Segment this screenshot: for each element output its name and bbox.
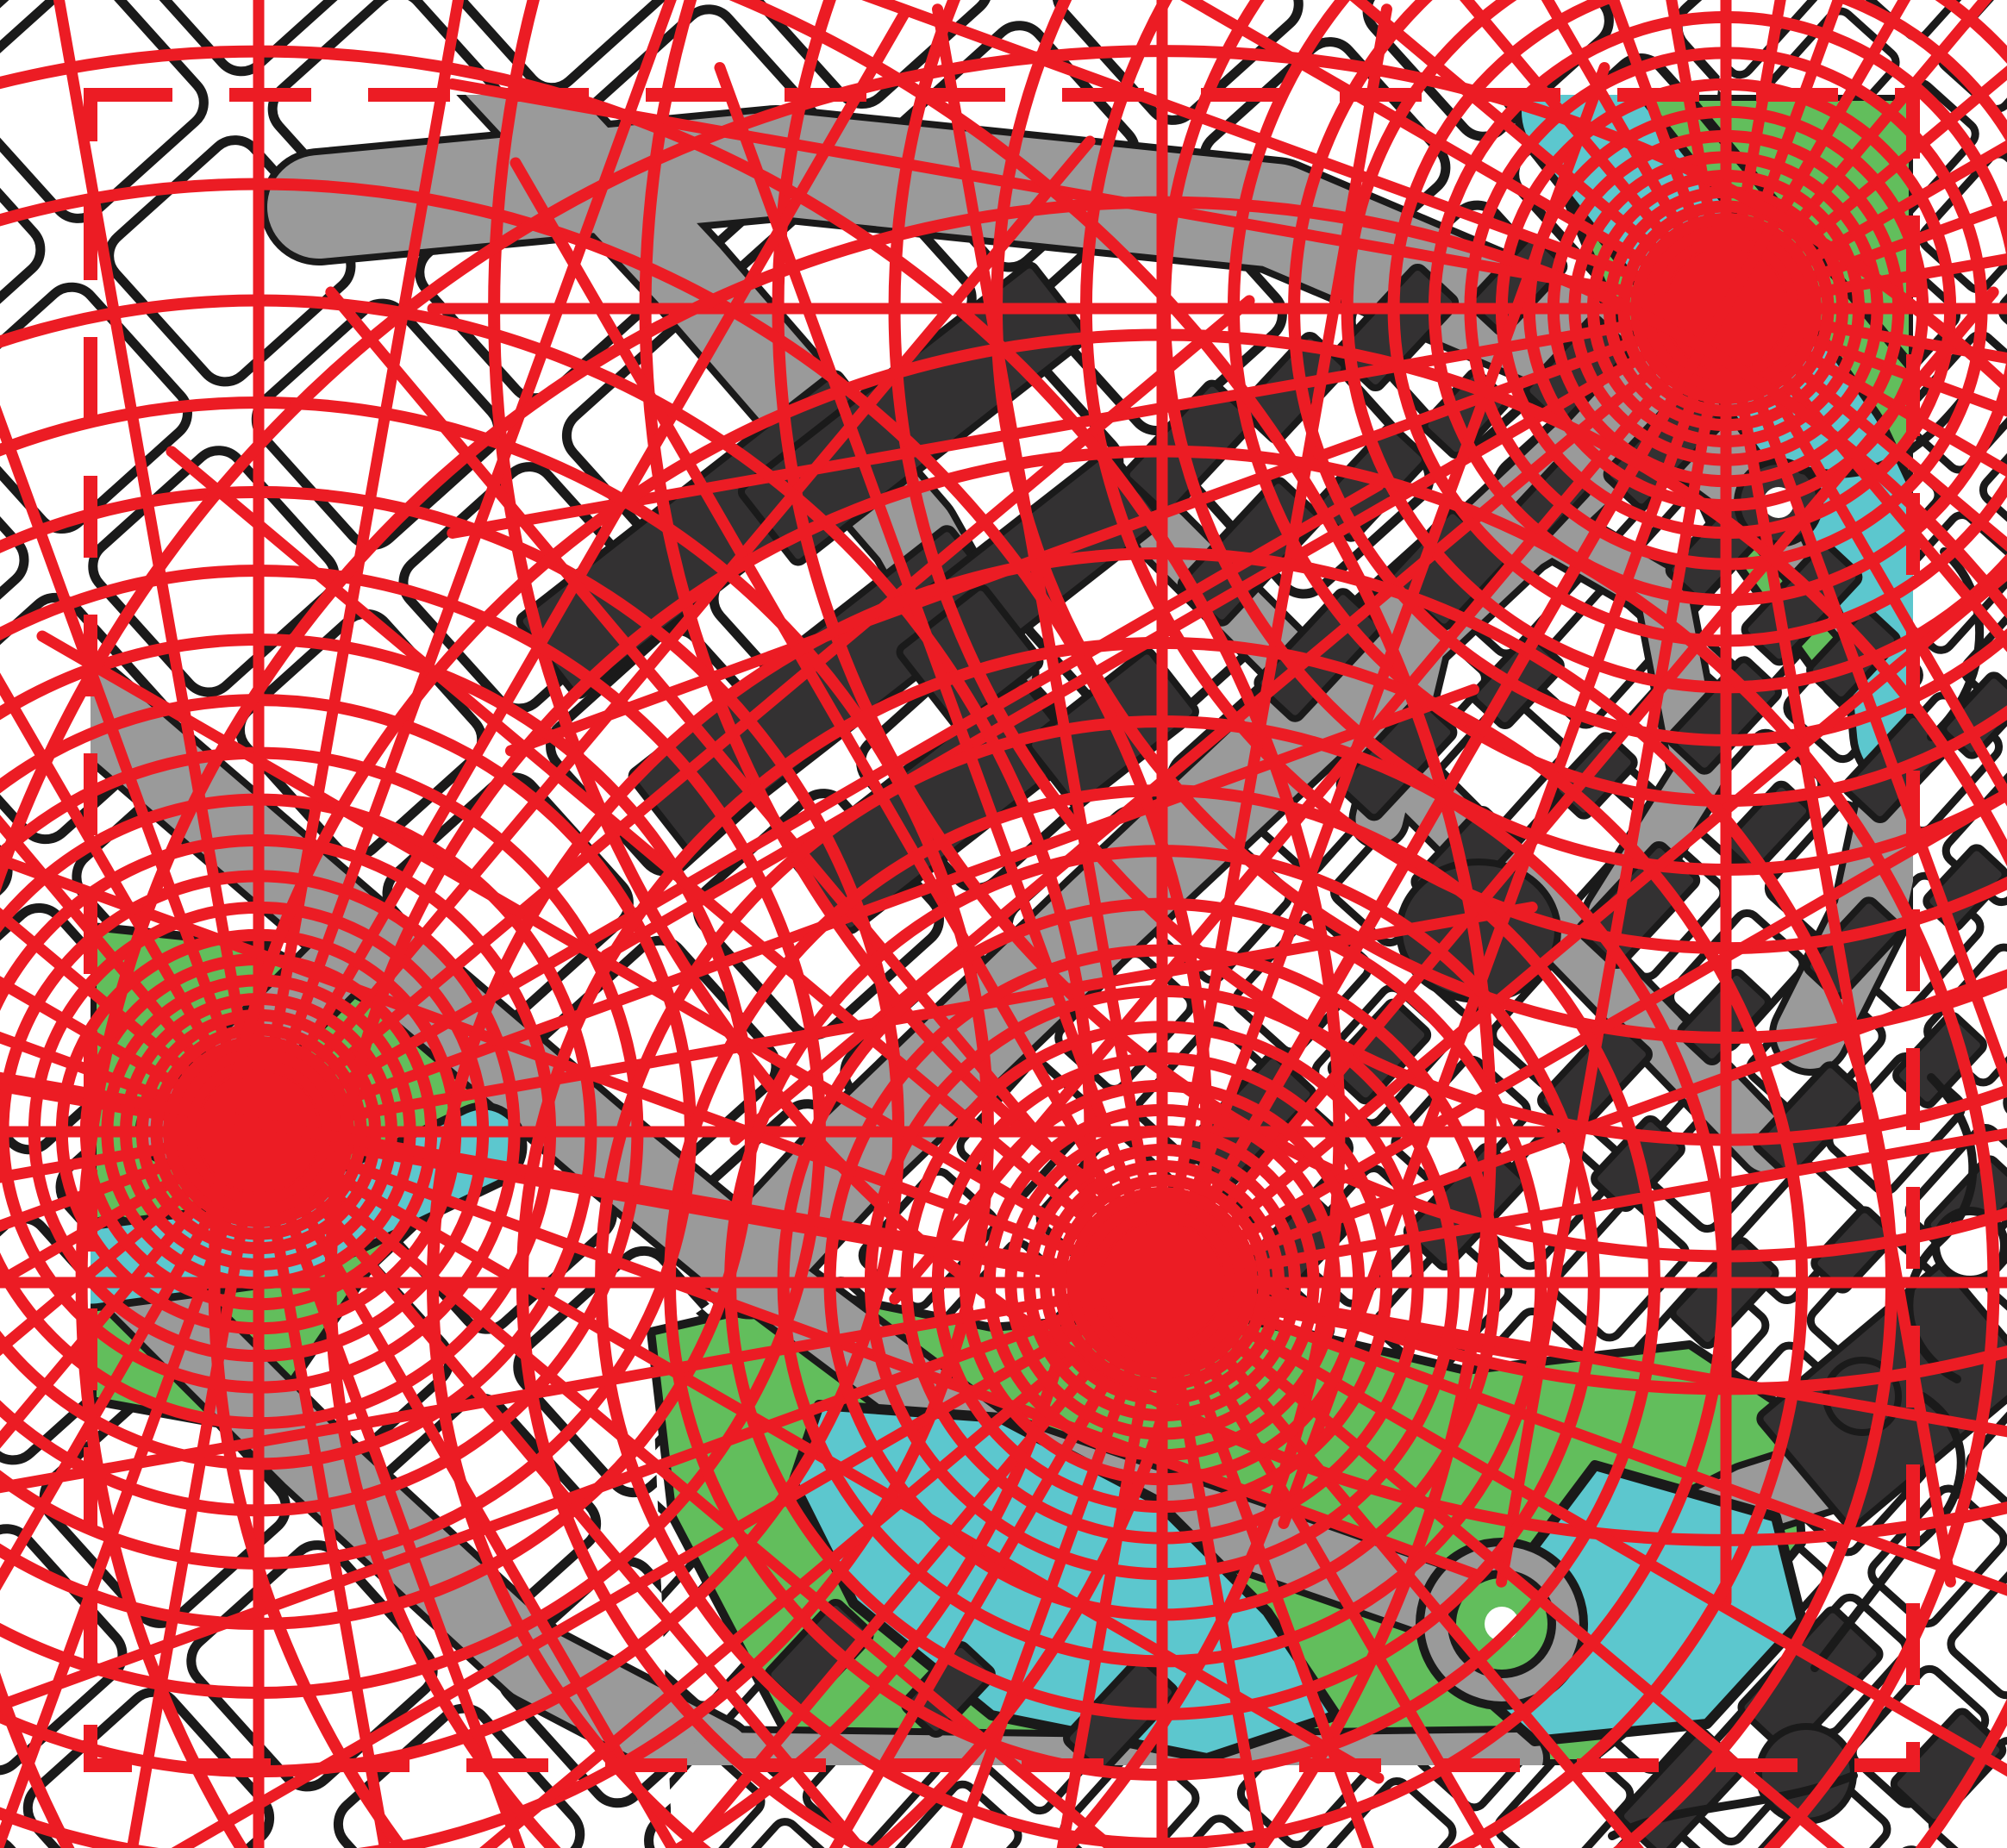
map-canvas: [0, 0, 2007, 1848]
radar-center-dot: [1102, 1222, 1222, 1343]
city-map-illustration: [0, 0, 2007, 1848]
